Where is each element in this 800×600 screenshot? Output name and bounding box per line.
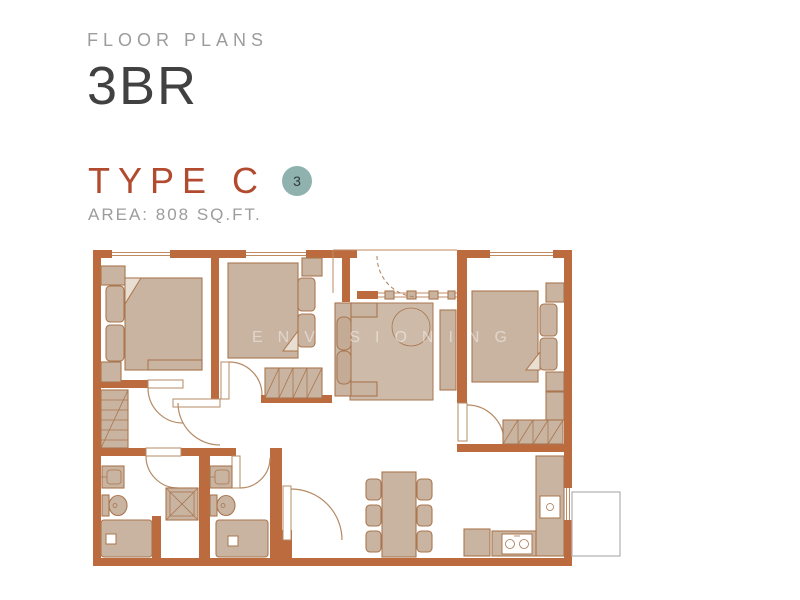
sill-tick bbox=[429, 291, 438, 299]
bedroom-2 bbox=[228, 258, 322, 398]
pillow-icon bbox=[298, 278, 315, 311]
dining-area bbox=[366, 472, 432, 557]
kitchen bbox=[464, 456, 564, 556]
nightstand-icon bbox=[101, 266, 125, 285]
living-room bbox=[335, 303, 456, 400]
stove-icon bbox=[502, 534, 532, 554]
door-leaf bbox=[458, 403, 467, 441]
nightstand-icon bbox=[101, 362, 121, 382]
wardrobe-icon bbox=[503, 420, 563, 444]
sink-icon bbox=[97, 466, 124, 488]
nightstand-icon bbox=[546, 283, 564, 302]
pillow-icon bbox=[298, 314, 315, 347]
sill-tick bbox=[385, 291, 394, 299]
door-leaf bbox=[146, 448, 181, 456]
wardrobe-icon bbox=[265, 368, 322, 398]
tv-console-icon bbox=[440, 310, 456, 390]
door-swing-icon bbox=[146, 456, 178, 488]
chair-icon bbox=[417, 505, 432, 526]
bedroom-3 bbox=[472, 283, 564, 444]
bedroom-1 bbox=[101, 266, 202, 448]
pillow-icon bbox=[540, 304, 557, 336]
chair-icon bbox=[417, 531, 432, 552]
pillow-icon bbox=[106, 325, 124, 361]
chair-icon bbox=[366, 479, 381, 500]
sill-tick bbox=[407, 291, 416, 299]
toilet-icon bbox=[210, 495, 235, 516]
bathtub-icon bbox=[101, 520, 152, 557]
sink-icon bbox=[206, 466, 232, 488]
kitchen-cabinet-icon bbox=[464, 529, 490, 556]
shower-icon bbox=[166, 488, 198, 520]
door-leaf bbox=[283, 486, 291, 540]
door-leaf bbox=[232, 456, 240, 488]
door-swing-icon bbox=[229, 362, 262, 395]
door-swing-icon bbox=[178, 403, 220, 445]
toilet-icon bbox=[102, 495, 127, 516]
chair-icon bbox=[366, 505, 381, 526]
door-leaf bbox=[221, 362, 229, 399]
bed-foot-icon bbox=[148, 360, 202, 370]
nightstand-icon bbox=[546, 372, 564, 391]
balcony-ledge bbox=[572, 492, 620, 556]
bed-icon bbox=[125, 278, 202, 370]
bathroom-1 bbox=[97, 466, 198, 557]
sill-tick bbox=[448, 291, 455, 299]
bathtub-icon bbox=[216, 520, 268, 557]
floor-plan-page: FLOOR PLANS 3BR TYPE C 3 AREA: 808 SQ.FT… bbox=[0, 0, 800, 600]
nightstand-icon bbox=[302, 258, 322, 276]
bed-icon bbox=[228, 263, 298, 358]
pillow-icon bbox=[106, 286, 124, 322]
chair-icon bbox=[366, 531, 381, 552]
kitchen-sink-icon bbox=[540, 496, 560, 518]
wardrobe-icon bbox=[101, 390, 128, 448]
door-leaf bbox=[173, 399, 220, 407]
floor-plan-drawing bbox=[0, 0, 800, 600]
dining-table-icon bbox=[382, 472, 416, 557]
door-swing-icon bbox=[291, 489, 342, 540]
door-swing-icon bbox=[467, 405, 504, 442]
door-swing-icon bbox=[240, 458, 270, 488]
door-leaf bbox=[148, 380, 183, 388]
chair-icon bbox=[417, 479, 432, 500]
wardrobe-side-icon bbox=[546, 392, 564, 420]
pillow-icon bbox=[540, 338, 557, 370]
